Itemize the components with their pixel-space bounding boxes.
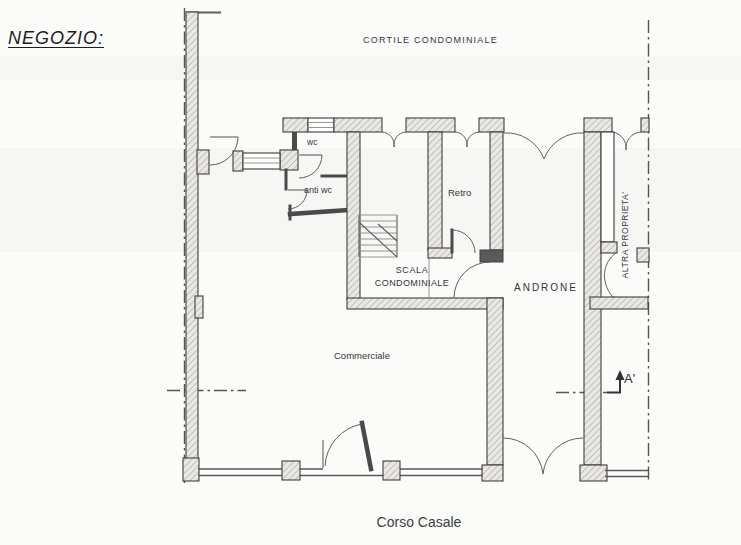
section-arrow [607, 370, 625, 393]
top-wall-segment [334, 118, 382, 132]
wc-wall-stem [292, 132, 297, 152]
cortile-label: CORTILE CONDOMINIALE [348, 36, 513, 46]
corso-casale-label: Corso Casale [334, 515, 504, 530]
scala-bottom-wall [347, 298, 503, 309]
wc-window [308, 118, 334, 132]
wall-foot [580, 465, 607, 481]
androne-gate-top-swing [504, 133, 584, 159]
anti-wc-label: anti wc [304, 186, 332, 196]
androne-label: ANDRONE [514, 282, 578, 293]
retro-door [452, 230, 475, 253]
top-wall-segment [283, 118, 308, 132]
commerciale-label: Commerciale [334, 351, 390, 361]
altra-proprieta-label: ALTRA PROPRIETA' [621, 192, 630, 279]
floor-plan-page: NEGOZIO: CORTILE CONDOMINIALE wc anti wc… [0, 0, 741, 545]
wall-pilaster [197, 150, 209, 174]
scala-label-line1: SCALA [352, 266, 472, 276]
neighbor-wall [601, 132, 614, 242]
section-a-label: A' [624, 372, 635, 386]
wc-block [210, 132, 350, 219]
retro-courtyard-door-swing [455, 132, 479, 147]
shop-entrance-door [323, 423, 371, 469]
wall-foot [482, 465, 503, 481]
partition-window [243, 153, 280, 169]
wc-wall-block [280, 150, 298, 170]
top-wall-segment [584, 118, 612, 132]
top-wall-segment [479, 118, 504, 132]
wall-cap-block [601, 242, 617, 253]
top-wall-segment [406, 118, 455, 132]
neighbor-courtyard-door-swing [612, 132, 641, 150]
androne-gate-bottom-swing [503, 438, 583, 474]
wall-stub [637, 248, 649, 262]
shopfront-pillar [282, 461, 300, 480]
top-wall-segment [641, 118, 649, 132]
corner-pillar [183, 458, 199, 481]
courtyard-door-swing [382, 132, 406, 147]
wall-pilaster [195, 296, 203, 318]
right-walls [580, 132, 649, 481]
scala-label-line2: CONDOMINIALE [352, 279, 472, 289]
wc-label: wc [307, 138, 317, 147]
wc-door [299, 155, 322, 178]
right-cross-wall [590, 297, 648, 309]
negozio-title: NEGOZIO: [8, 29, 104, 49]
left-wall [183, 12, 221, 481]
shopfront-pillar [383, 461, 400, 480]
anti-wc-bottom-wall [290, 210, 350, 214]
right-shopfront-line [605, 471, 648, 477]
window-end-block [233, 151, 243, 171]
shopfront-wall [198, 423, 483, 480]
stair-break-line [360, 223, 397, 257]
retro-label: Retro [448, 188, 471, 198]
wall-cap-block [480, 250, 503, 262]
stairs [359, 215, 397, 257]
